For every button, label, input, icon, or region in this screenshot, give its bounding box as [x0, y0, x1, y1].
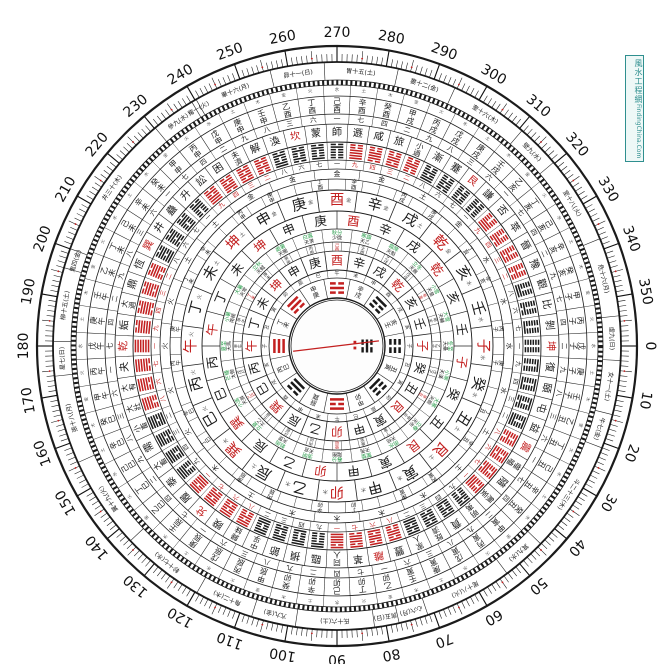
- svg-text:午: 午: [183, 339, 200, 354]
- svg-text:巽: 巽: [227, 413, 247, 432]
- svg-text:未: 未: [315, 412, 322, 420]
- svg-text:10: 10: [636, 390, 655, 410]
- svg-text:艮: 艮: [465, 173, 480, 189]
- svg-text:丙: 丙: [246, 361, 263, 376]
- svg-text:觀: 觀: [534, 277, 548, 290]
- svg-text:己酉: 己酉: [335, 242, 339, 252]
- svg-text:己酉: 己酉: [333, 97, 341, 114]
- svg-text:卯: 卯: [330, 484, 345, 501]
- svg-text:亥: 亥: [402, 295, 420, 312]
- watermark-text-en: FindingChina.Com: [635, 104, 642, 158]
- svg-text:亥: 亥: [403, 324, 411, 331]
- svg-text:火: 火: [483, 549, 490, 556]
- svg-text:六: 六: [309, 115, 317, 125]
- luopan-compass: 0102030405060708090100110120130140150160…: [0, 0, 657, 664]
- svg-text:午: 午: [334, 415, 339, 422]
- svg-text:50: 50: [526, 574, 550, 598]
- svg-text:木: 木: [387, 91, 393, 99]
- svg-text:火: 火: [166, 297, 176, 306]
- svg-text:己丑: 己丑: [536, 459, 555, 474]
- svg-text:九: 九: [316, 523, 323, 532]
- svg-text:金: 金: [89, 263, 97, 270]
- svg-text:辛酉: 辛酉: [357, 96, 367, 115]
- svg-text:水: 水: [205, 119, 213, 128]
- svg-text:軫十七(水): 軫十七(水): [153, 550, 181, 575]
- svg-text:木: 木: [82, 289, 90, 295]
- svg-text:八: 八: [280, 168, 288, 176]
- svg-text:壬寅: 壬寅: [405, 566, 418, 586]
- svg-text:土: 土: [78, 316, 85, 322]
- svg-text:辛: 辛: [377, 220, 394, 239]
- svg-text:酉: 酉: [331, 254, 343, 268]
- svg-text:三: 三: [159, 289, 167, 297]
- svg-text:癸卯: 癸卯: [281, 573, 293, 592]
- svg-text:金: 金: [254, 586, 261, 594]
- svg-text:丙寅: 丙寅: [470, 532, 486, 550]
- svg-text:火: 火: [202, 405, 210, 412]
- svg-text:甲卯: 甲卯: [353, 392, 364, 408]
- svg-text:0: 0: [642, 342, 657, 351]
- svg-text:亥: 亥: [444, 289, 463, 306]
- svg-text:七: 七: [554, 294, 564, 303]
- svg-text:八: 八: [506, 289, 514, 297]
- svg-text:大壯: 大壯: [123, 401, 142, 414]
- svg-text:坤: 坤: [545, 341, 558, 351]
- svg-text:申: 申: [280, 220, 297, 239]
- svg-text:土: 土: [416, 221, 425, 231]
- svg-text:癸酉: 癸酉: [382, 100, 394, 119]
- svg-text:二: 二: [402, 174, 410, 183]
- svg-text:大畜: 大畜: [150, 456, 169, 473]
- svg-text:午: 午: [204, 322, 221, 336]
- svg-text:甲戌: 甲戌: [405, 108, 418, 127]
- svg-text:姤: 姤: [118, 319, 131, 330]
- svg-text:亢九(金): 亢九(金): [263, 607, 288, 620]
- svg-text:辛午: 辛午: [232, 344, 243, 348]
- svg-text:乙: 乙: [290, 477, 308, 496]
- svg-text:八: 八: [386, 515, 394, 523]
- svg-text:丙: 丙: [187, 375, 206, 393]
- svg-text:三: 三: [286, 119, 295, 128]
- svg-text:340: 340: [619, 224, 643, 255]
- svg-text:辛丑: 辛丑: [461, 435, 476, 448]
- svg-text:六: 六: [369, 520, 377, 529]
- svg-text:戌: 戌: [371, 263, 388, 281]
- svg-text:金: 金: [584, 290, 592, 296]
- svg-text:二: 二: [263, 174, 271, 183]
- svg-text:水: 水: [334, 599, 339, 606]
- svg-text:柳十五(土): 柳十五(土): [59, 290, 71, 320]
- svg-text:金: 金: [413, 98, 420, 106]
- svg-text:丙午: 丙午: [88, 366, 106, 376]
- svg-text:坤: 坤: [251, 236, 270, 256]
- svg-text:一: 一: [334, 161, 340, 168]
- svg-text:丁酉: 丁酉: [317, 178, 324, 191]
- svg-text:土: 土: [98, 446, 106, 453]
- svg-text:癸: 癸: [411, 361, 428, 376]
- svg-text:金: 金: [288, 174, 297, 185]
- svg-text:七: 七: [514, 325, 523, 332]
- svg-text:戊申: 戊申: [208, 127, 224, 147]
- svg-text:子: 子: [475, 339, 492, 354]
- svg-text:亥壬: 亥壬: [383, 318, 400, 330]
- watermark-badge[interactable]: 風水工程網FindingChina.Com: [625, 55, 644, 162]
- svg-text:癸亥: 癸亥: [557, 265, 577, 278]
- svg-text:280: 280: [377, 28, 406, 48]
- svg-text:二: 二: [403, 125, 412, 135]
- svg-text:丁: 丁: [211, 289, 230, 306]
- svg-text:辰: 辰: [286, 411, 303, 429]
- svg-text:六: 六: [511, 307, 520, 315]
- svg-text:二: 二: [165, 272, 174, 280]
- svg-text:火: 火: [190, 369, 197, 375]
- svg-text:庚午: 庚午: [87, 316, 106, 326]
- svg-text:恆: 恆: [131, 257, 147, 271]
- svg-text:酉: 酉: [346, 213, 360, 230]
- svg-text:寅: 寅: [377, 453, 394, 472]
- svg-text:水: 水: [498, 386, 509, 395]
- svg-text:土: 土: [229, 107, 236, 115]
- svg-text:火: 火: [438, 109, 445, 116]
- svg-text:辛卯: 辛卯: [316, 500, 323, 514]
- svg-text:310: 310: [523, 92, 554, 121]
- svg-text:乙丑: 乙丑: [557, 414, 576, 427]
- svg-text:天壘: 天壘: [441, 341, 447, 351]
- svg-text:乾: 乾: [117, 341, 130, 351]
- svg-text:火: 火: [588, 317, 593, 322]
- svg-text:四: 四: [155, 307, 163, 314]
- svg-text:申庚: 申庚: [309, 283, 321, 300]
- svg-text:一: 一: [515, 343, 522, 349]
- svg-text:益: 益: [527, 421, 543, 435]
- svg-text:水: 水: [461, 564, 469, 573]
- svg-text:震: 震: [518, 439, 533, 454]
- svg-text:八: 八: [262, 557, 271, 567]
- svg-text:丑: 丑: [264, 324, 271, 330]
- svg-text:未濟: 未濟: [229, 148, 244, 167]
- svg-text:未: 未: [227, 259, 247, 278]
- svg-text:子: 子: [406, 344, 413, 349]
- svg-text:乙: 乙: [280, 453, 297, 472]
- svg-text:壬: 壬: [411, 316, 428, 331]
- svg-text:土: 土: [437, 576, 444, 584]
- svg-text:八: 八: [159, 395, 167, 403]
- svg-text:戌: 戌: [396, 306, 405, 314]
- svg-text:庚寅: 庚寅: [428, 557, 443, 577]
- svg-text:乙酉: 乙酉: [281, 101, 292, 119]
- svg-text:庚子: 庚子: [491, 359, 505, 366]
- svg-text:戊子: 戊子: [570, 342, 588, 350]
- svg-text:二: 二: [263, 509, 271, 518]
- svg-text:少微: 少微: [332, 235, 342, 242]
- svg-text:昴十一(日): 昴十一(日): [283, 68, 313, 80]
- svg-text:四: 四: [369, 164, 376, 172]
- svg-text:火: 火: [161, 342, 169, 349]
- svg-text:火: 火: [308, 89, 313, 94]
- svg-text:丁酉: 丁酉: [307, 97, 317, 115]
- svg-text:子: 子: [261, 343, 268, 348]
- svg-text:二: 二: [500, 272, 509, 280]
- svg-text:二: 二: [500, 411, 509, 419]
- svg-text:氐十六(土): 氐十六(土): [320, 617, 350, 625]
- svg-text:丁未: 丁未: [275, 318, 291, 330]
- svg-text:丙子: 丙子: [568, 316, 586, 326]
- svg-text:辰: 辰: [250, 436, 269, 456]
- svg-text:解: 解: [248, 140, 262, 156]
- svg-text:土: 土: [567, 238, 575, 245]
- svg-text:260: 260: [268, 28, 297, 48]
- svg-text:木: 木: [413, 586, 420, 594]
- svg-text:火: 火: [540, 193, 547, 200]
- svg-text:金: 金: [377, 174, 386, 185]
- svg-text:剝: 剝: [543, 319, 556, 330]
- svg-text:復: 復: [543, 361, 557, 372]
- svg-text:土: 土: [249, 462, 258, 472]
- svg-text:丁丑: 丁丑: [478, 407, 492, 418]
- svg-text:丙子: 丙子: [491, 326, 504, 333]
- svg-text:乾: 乾: [427, 260, 447, 279]
- svg-text:庚戌: 庚戌: [471, 141, 488, 160]
- svg-text:一: 一: [152, 343, 159, 349]
- svg-text:午: 午: [245, 340, 259, 352]
- svg-text:火: 火: [361, 597, 366, 602]
- svg-text:160: 160: [31, 438, 55, 469]
- svg-text:庚寅: 庚寅: [397, 487, 408, 502]
- svg-text:甲午: 甲午: [92, 390, 110, 401]
- svg-text:土: 土: [361, 87, 367, 94]
- svg-text:110: 110: [215, 628, 246, 652]
- svg-text:庚戌: 庚戌: [426, 207, 439, 222]
- svg-text:二: 二: [110, 294, 119, 303]
- svg-text:金: 金: [281, 91, 287, 99]
- svg-text:丙辰: 丙辰: [266, 487, 277, 501]
- svg-text:辰巽: 辰巽: [309, 391, 321, 407]
- svg-text:己未: 己未: [119, 218, 138, 233]
- svg-text:金: 金: [307, 197, 314, 206]
- svg-text:火: 火: [127, 492, 134, 499]
- svg-text:屯: 屯: [534, 401, 549, 415]
- svg-text:丙申: 丙申: [187, 142, 203, 160]
- svg-text:二: 二: [165, 411, 174, 419]
- svg-text:困: 困: [211, 161, 226, 177]
- svg-text:丙戌: 丙戌: [398, 191, 409, 205]
- svg-text:需: 需: [141, 439, 156, 454]
- svg-text:丙巳: 丙巳: [275, 362, 291, 374]
- svg-text:六: 六: [298, 163, 306, 172]
- svg-text:戊寅: 戊寅: [450, 545, 466, 565]
- svg-text:既濟: 既濟: [430, 525, 445, 544]
- svg-text:辛卯: 辛卯: [307, 577, 317, 596]
- svg-text:丁: 丁: [246, 316, 263, 331]
- svg-text:辛未: 辛未: [198, 244, 213, 257]
- svg-text:子: 子: [416, 340, 430, 352]
- svg-text:四: 四: [333, 569, 340, 577]
- svg-text:丁丑: 丁丑: [548, 437, 567, 451]
- svg-text:60: 60: [482, 606, 505, 629]
- svg-text:己巳: 己巳: [119, 459, 138, 474]
- svg-text:九: 九: [558, 366, 568, 374]
- svg-text:壬申: 壬申: [256, 107, 269, 127]
- svg-text:壬子: 壬子: [564, 391, 583, 403]
- svg-text:戌: 戌: [270, 378, 279, 386]
- svg-text:140: 140: [83, 532, 112, 563]
- svg-text:井三十(木): 井三十(木): [100, 173, 124, 202]
- svg-text:未: 未: [352, 272, 359, 280]
- svg-text:八: 八: [262, 125, 271, 135]
- svg-text:庚午: 庚午: [168, 325, 182, 332]
- svg-text:130: 130: [120, 571, 151, 600]
- svg-text:壬午: 壬午: [91, 290, 110, 302]
- svg-text:水: 水: [205, 564, 213, 573]
- svg-text:190: 190: [19, 277, 39, 306]
- svg-text:金: 金: [382, 203, 390, 213]
- svg-text:巳: 巳: [211, 386, 230, 403]
- svg-text:320: 320: [562, 129, 591, 160]
- svg-text:丁卯: 丁卯: [357, 577, 367, 595]
- svg-text:夬: 夬: [117, 361, 131, 372]
- svg-text:七: 七: [105, 342, 114, 349]
- svg-text:室十八(火): 室十八(火): [561, 189, 583, 218]
- svg-text:水: 水: [111, 214, 120, 222]
- svg-text:水: 水: [498, 297, 509, 306]
- svg-text:女十一(土): 女十一(土): [603, 371, 615, 401]
- svg-text:七: 七: [152, 360, 161, 367]
- svg-text:二: 二: [309, 567, 317, 576]
- svg-text:170: 170: [19, 386, 39, 415]
- svg-text:兌: 兌: [194, 503, 209, 519]
- svg-text:星七(日): 星七(日): [58, 347, 67, 371]
- svg-text:庚: 庚: [290, 195, 308, 215]
- svg-text:豫: 豫: [527, 257, 543, 271]
- svg-text:癸巳: 癸巳: [98, 414, 118, 427]
- svg-text:子: 子: [454, 355, 471, 369]
- svg-text:升: 升: [178, 187, 194, 203]
- svg-text:水: 水: [110, 470, 119, 478]
- svg-text:庚子: 庚子: [568, 366, 587, 376]
- svg-text:土: 土: [588, 370, 595, 376]
- svg-text:巳: 巳: [315, 273, 321, 280]
- svg-text:乙未: 乙未: [99, 265, 118, 278]
- svg-text:火: 火: [100, 239, 107, 246]
- svg-text:水: 水: [479, 355, 487, 362]
- svg-text:木: 木: [584, 396, 592, 402]
- svg-text:水: 水: [590, 344, 597, 349]
- svg-text:一: 一: [107, 366, 116, 374]
- svg-text:金: 金: [346, 196, 353, 204]
- svg-text:250: 250: [215, 40, 246, 64]
- svg-text:乙子: 乙子: [432, 344, 442, 348]
- svg-text:火: 火: [189, 331, 195, 337]
- svg-text:癸: 癸: [468, 375, 488, 394]
- svg-text:同人: 同人: [333, 551, 341, 568]
- svg-text:癸: 癸: [444, 386, 463, 404]
- svg-text:家人: 家人: [411, 534, 425, 553]
- svg-text:金: 金: [577, 422, 585, 429]
- svg-text:丑: 丑: [402, 380, 420, 397]
- svg-text:丙: 丙: [204, 355, 221, 369]
- svg-text:牛七(金): 牛七(金): [592, 416, 607, 441]
- svg-text:遯: 遯: [352, 127, 363, 140]
- svg-text:火: 火: [80, 370, 85, 375]
- svg-text:木: 木: [89, 422, 97, 429]
- svg-text:木: 木: [288, 507, 297, 518]
- svg-text:戊子: 戊子: [428, 369, 439, 376]
- svg-text:艮: 艮: [404, 436, 423, 456]
- svg-text:豐: 豐: [392, 543, 406, 558]
- svg-text:水: 水: [555, 214, 564, 222]
- svg-text:水: 水: [555, 471, 564, 479]
- svg-text:癸卯: 癸卯: [334, 440, 339, 451]
- svg-text:酉: 酉: [330, 193, 345, 209]
- svg-text:乙: 乙: [307, 420, 322, 437]
- svg-text:離: 離: [372, 549, 385, 564]
- svg-text:比: 比: [540, 298, 555, 311]
- svg-text:胃十五(土): 胃十五(土): [346, 67, 376, 78]
- svg-text:癸未: 癸未: [148, 175, 167, 193]
- svg-text:申: 申: [286, 263, 303, 281]
- svg-text:三: 三: [506, 395, 514, 403]
- svg-text:戊辰: 戊辰: [208, 545, 224, 565]
- svg-text:辛丑: 辛丑: [523, 480, 542, 497]
- svg-text:癸丑: 癸丑: [507, 499, 526, 517]
- svg-text:大過: 大過: [118, 298, 137, 309]
- svg-text:350: 350: [635, 277, 655, 306]
- svg-text:甲辰: 甲辰: [256, 566, 269, 585]
- svg-text:辛巳: 辛巳: [107, 437, 127, 452]
- svg-text:丑: 丑: [427, 413, 447, 432]
- svg-text:木: 木: [395, 474, 404, 484]
- svg-text:三: 三: [386, 168, 394, 176]
- svg-text:四: 四: [107, 318, 116, 326]
- svg-text:20: 20: [621, 442, 642, 464]
- svg-text:一: 一: [380, 563, 389, 572]
- svg-text:二: 二: [560, 343, 568, 350]
- svg-text:臨: 臨: [310, 552, 321, 566]
- svg-text:亥: 亥: [263, 361, 271, 368]
- svg-text:漸: 漸: [430, 150, 445, 165]
- svg-text:損: 損: [289, 549, 302, 564]
- svg-text:金: 金: [444, 246, 454, 256]
- svg-text:三: 三: [548, 412, 558, 421]
- svg-text:睽: 睽: [211, 516, 226, 532]
- svg-text:壬辰: 壬辰: [166, 516, 184, 535]
- svg-text:歸妹: 歸妹: [228, 524, 243, 543]
- svg-text:丁: 丁: [187, 299, 206, 317]
- svg-text:丑寅: 丑寅: [382, 362, 398, 374]
- svg-text:癸申: 癸申: [283, 253, 293, 265]
- svg-text:節: 節: [268, 543, 282, 558]
- svg-text:翼十九(火): 翼十九(火): [97, 484, 120, 513]
- svg-text:六: 六: [539, 434, 550, 444]
- svg-text:房五(日): 房五(日): [373, 611, 397, 623]
- svg-text:辛亥: 辛亥: [478, 275, 493, 286]
- svg-text:未: 未: [254, 295, 272, 312]
- svg-text:小過: 小過: [412, 139, 426, 158]
- svg-text:木: 木: [322, 488, 329, 496]
- svg-text:三: 三: [116, 411, 126, 420]
- svg-text:噬嗑: 噬嗑: [505, 457, 524, 474]
- svg-text:丁亥: 丁亥: [523, 196, 541, 212]
- svg-text:己亥: 己亥: [536, 218, 555, 233]
- svg-text:庚: 庚: [313, 213, 327, 230]
- svg-text:丁卯: 丁卯: [350, 500, 357, 513]
- svg-text:午: 午: [335, 270, 340, 277]
- svg-text:水: 水: [465, 279, 475, 288]
- svg-text:220: 220: [83, 129, 112, 160]
- svg-text:六: 六: [109, 389, 119, 398]
- svg-text:辛戌: 辛戌: [353, 284, 365, 301]
- svg-text:己卯: 己卯: [333, 579, 341, 596]
